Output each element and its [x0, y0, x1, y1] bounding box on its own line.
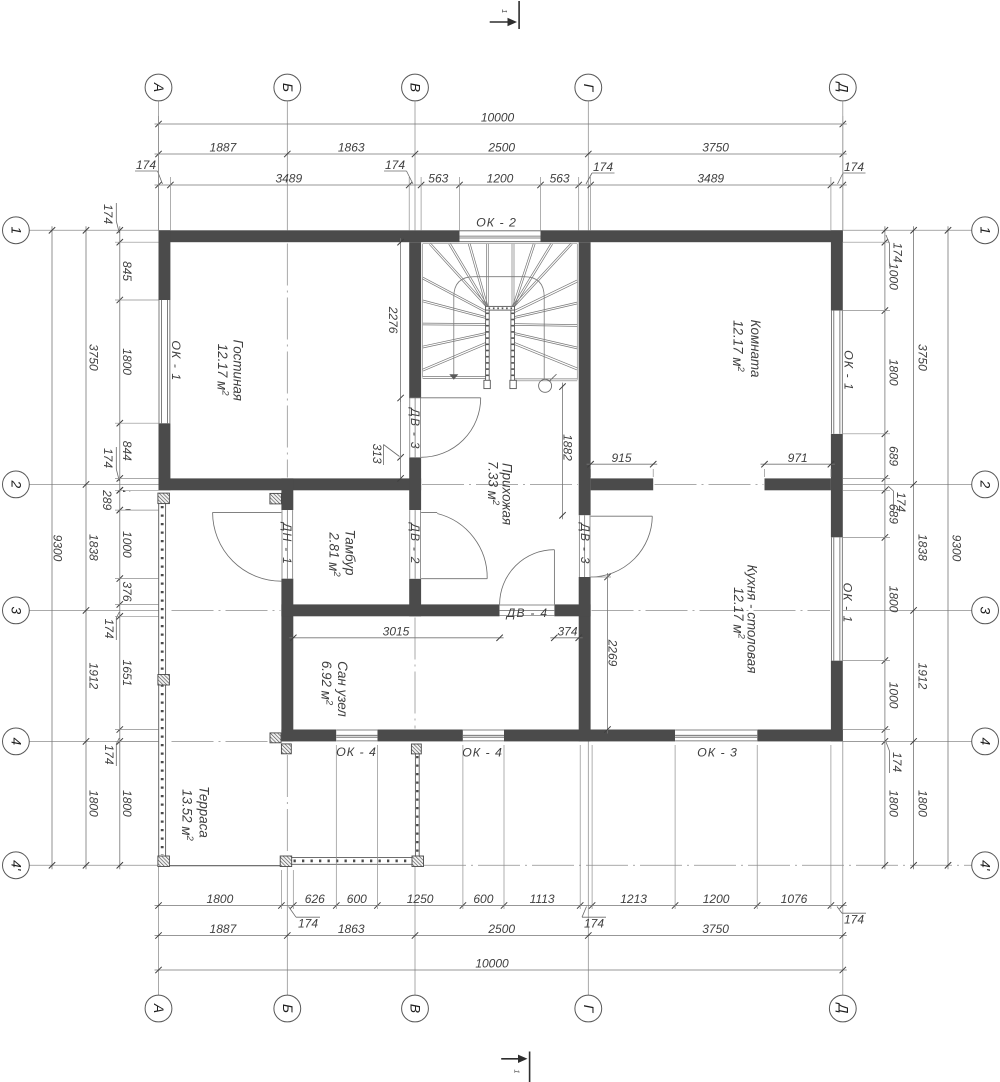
svg-text:3489: 3489	[697, 172, 724, 186]
svg-text:915: 915	[611, 451, 631, 465]
svg-text:1863: 1863	[338, 922, 365, 936]
svg-text:1: 1	[500, 9, 509, 13]
svg-text:971: 971	[788, 451, 808, 465]
svg-text:1000: 1000	[887, 263, 901, 290]
svg-text:600: 600	[347, 892, 367, 906]
svg-text:3015: 3015	[383, 625, 410, 639]
svg-text:174: 174	[101, 448, 115, 468]
svg-text:В: В	[408, 1004, 423, 1013]
svg-text:4: 4	[8, 738, 23, 746]
svg-text:1912: 1912	[916, 663, 930, 690]
svg-text:845: 845	[120, 261, 134, 281]
svg-text:3750: 3750	[702, 141, 729, 155]
svg-text:1863: 1863	[338, 141, 365, 155]
svg-text:ОК - 1: ОК - 1	[842, 350, 856, 391]
svg-text:Гостиная: Гостиная	[231, 340, 246, 401]
svg-text:1076: 1076	[781, 892, 808, 906]
svg-text:1800: 1800	[887, 790, 901, 817]
svg-text:Б: Б	[280, 1004, 295, 1013]
svg-text:10000: 10000	[481, 111, 515, 125]
svg-text:Прихожая: Прихожая	[500, 463, 515, 525]
svg-text:А: А	[151, 1003, 166, 1013]
svg-text:174: 174	[385, 158, 405, 172]
svg-text:ОК - 4: ОК - 4	[462, 746, 503, 760]
svg-text:1200: 1200	[487, 172, 514, 186]
svg-text:174: 174	[102, 619, 116, 639]
svg-text:1000: 1000	[887, 682, 901, 709]
svg-text:1200: 1200	[703, 892, 730, 906]
svg-text:600: 600	[473, 892, 493, 906]
svg-text:Тамбур: Тамбур	[343, 530, 358, 576]
svg-text:174: 174	[584, 917, 604, 931]
svg-text:4': 4'	[978, 860, 993, 872]
svg-text:1: 1	[8, 226, 23, 234]
svg-text:ДВ - 4: ДВ - 4	[505, 606, 549, 620]
svg-text:2: 2	[978, 480, 993, 489]
svg-text:174: 174	[102, 744, 116, 764]
svg-text:174: 174	[844, 913, 864, 927]
svg-text:ДВ - 2: ДВ - 2	[408, 521, 422, 565]
svg-text:376: 376	[120, 581, 134, 601]
svg-text:1800: 1800	[916, 790, 930, 817]
svg-text:Терраса: Терраса	[197, 786, 212, 838]
svg-text:13.52 м2: 13.52 м2	[180, 789, 196, 841]
svg-text:174: 174	[844, 160, 864, 174]
svg-text:1250: 1250	[407, 892, 434, 906]
svg-text:1800: 1800	[120, 348, 134, 375]
svg-text:ДВ - 3: ДВ - 3	[578, 521, 592, 565]
svg-text:ОК - 4: ОК - 4	[336, 745, 377, 759]
svg-text:4: 4	[978, 738, 993, 746]
svg-text:174: 174	[101, 204, 115, 224]
svg-text:3: 3	[978, 607, 993, 615]
svg-text:1800: 1800	[120, 790, 134, 817]
svg-text:1651: 1651	[120, 660, 134, 687]
svg-text:4': 4'	[8, 860, 23, 872]
svg-text:Сан узел: Сан узел	[335, 661, 350, 717]
svg-text:3750: 3750	[87, 344, 101, 371]
svg-text:2.81 м2: 2.81 м2	[327, 531, 343, 577]
svg-text:174: 174	[894, 492, 908, 512]
svg-text:1882: 1882	[560, 434, 574, 461]
svg-text:12.17 м2: 12.17 м2	[731, 587, 747, 639]
svg-text:1800: 1800	[887, 359, 901, 386]
svg-text:2: 2	[8, 480, 23, 489]
svg-text:2269: 2269	[605, 639, 619, 667]
svg-text:ДН - 1: ДН - 1	[280, 521, 294, 565]
svg-text:844: 844	[120, 441, 134, 461]
svg-text:В: В	[408, 83, 423, 92]
svg-text:374: 374	[557, 625, 577, 639]
svg-text:Д: Д	[835, 81, 850, 93]
svg-text:9300: 9300	[51, 535, 65, 562]
svg-text:174: 174	[890, 752, 904, 772]
svg-text:ОК - 1: ОК - 1	[169, 340, 183, 381]
svg-text:ОК - 2: ОК - 2	[476, 216, 517, 230]
svg-text:1: 1	[513, 1069, 522, 1073]
svg-text:1113: 1113	[530, 892, 555, 906]
svg-text:Комната: Комната	[748, 320, 763, 378]
svg-text:Д: Д	[835, 1002, 850, 1014]
svg-text:12.17 м2: 12.17 м2	[215, 344, 231, 396]
svg-text:626: 626	[305, 892, 325, 906]
svg-text:12.17 м2: 12.17 м2	[731, 320, 747, 372]
svg-text:6.92 м2: 6.92 м2	[319, 661, 335, 706]
svg-text:174: 174	[136, 158, 156, 172]
svg-text:563: 563	[550, 172, 570, 186]
svg-text:1838: 1838	[916, 534, 930, 561]
svg-text:3489: 3489	[275, 172, 302, 186]
svg-text:1912: 1912	[87, 663, 101, 690]
svg-text:1800: 1800	[887, 586, 901, 613]
svg-text:2500: 2500	[487, 141, 515, 155]
svg-text:174: 174	[593, 160, 613, 174]
svg-text:563: 563	[428, 172, 448, 186]
svg-text:3750: 3750	[702, 922, 729, 936]
svg-text:289: 289	[100, 489, 114, 510]
svg-text:689: 689	[887, 446, 901, 466]
svg-text:10000: 10000	[475, 957, 509, 971]
svg-text:1800: 1800	[87, 790, 101, 817]
svg-text:А: А	[151, 82, 166, 92]
svg-text:2500: 2500	[487, 922, 515, 936]
svg-text:ОК - 1: ОК - 1	[841, 583, 855, 624]
svg-text:313: 313	[370, 444, 384, 464]
svg-text:ДВ - 3: ДВ - 3	[408, 406, 422, 450]
svg-text:1887: 1887	[210, 141, 238, 155]
svg-text:174: 174	[298, 917, 318, 931]
svg-text:2276: 2276	[386, 306, 400, 334]
svg-text:9300: 9300	[950, 535, 964, 562]
svg-text:ОК - 3: ОК - 3	[697, 746, 738, 760]
svg-text:1213: 1213	[620, 892, 647, 906]
svg-text:3: 3	[8, 607, 23, 615]
svg-text:1887: 1887	[210, 922, 238, 936]
svg-text:3750: 3750	[916, 344, 930, 371]
svg-text:7.33 м2: 7.33 м2	[486, 461, 502, 506]
svg-text:Б: Б	[280, 83, 295, 92]
svg-text:1000: 1000	[120, 531, 134, 558]
svg-text:1838: 1838	[87, 534, 101, 561]
svg-text:174: 174	[891, 242, 905, 262]
svg-text:1800: 1800	[207, 892, 234, 906]
svg-text:1: 1	[978, 226, 993, 234]
